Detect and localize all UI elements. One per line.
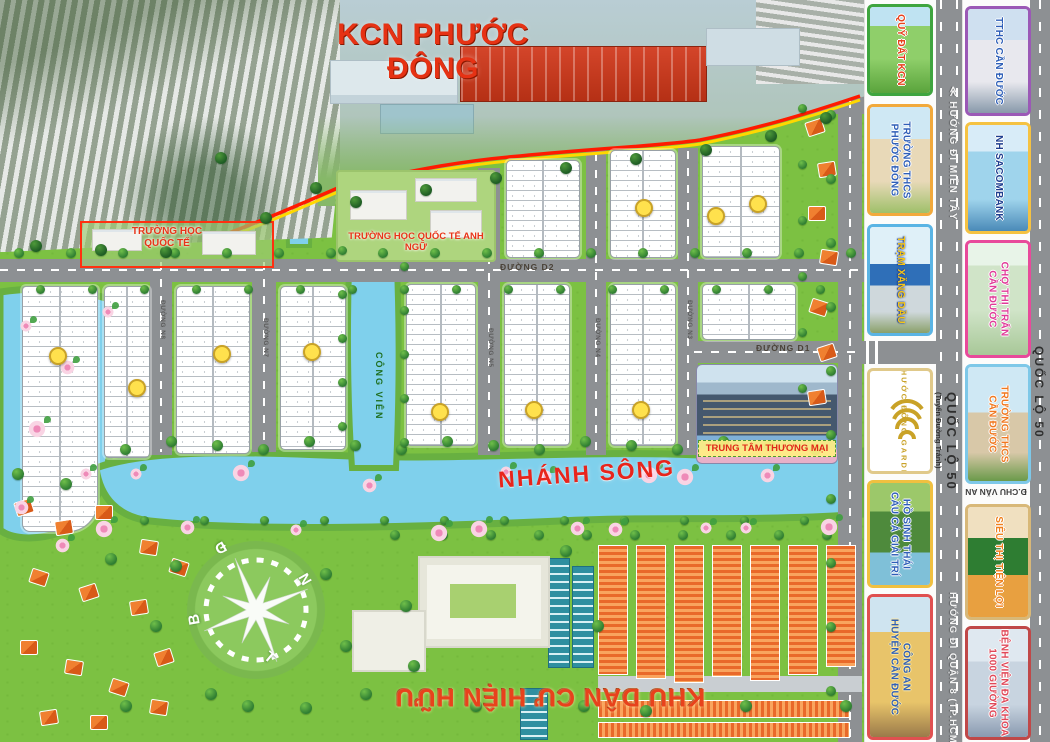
rowhouse-block xyxy=(674,545,704,683)
road-d1-label: ĐƯỜNG D1 xyxy=(756,343,810,353)
chu-van-an-street-label: Đ.CHU VĂN AN xyxy=(963,487,1029,497)
amenity-card-police: CÔNG AN HUYỆN CẦN ĐƯỚC xyxy=(867,594,933,740)
tree xyxy=(400,600,412,612)
amenity-card-school-phuoc-dong: TRƯỜNG THCS PHƯỚC ĐÔNG xyxy=(867,104,933,216)
tree xyxy=(798,160,807,169)
tree xyxy=(36,285,45,294)
tree xyxy=(534,530,544,540)
tree xyxy=(700,144,712,156)
amenity-card-industrial-land: QUỸ ĐẤT KCN xyxy=(867,4,933,96)
rowhouse-block xyxy=(598,545,628,675)
tree xyxy=(400,350,409,359)
lily-pad xyxy=(193,516,200,523)
tree xyxy=(826,494,836,504)
tree xyxy=(400,306,409,315)
villa-house xyxy=(808,206,826,221)
amenity-card-convenience-store: SIÊU THỊ TIỆN LỢI xyxy=(965,504,1031,620)
apartment-building xyxy=(572,566,594,668)
tree xyxy=(608,285,617,294)
tree xyxy=(60,478,72,490)
tree xyxy=(840,700,852,712)
lot-block xyxy=(610,284,676,446)
tree xyxy=(212,440,223,451)
tree xyxy=(400,438,409,447)
tree xyxy=(338,334,347,343)
tree xyxy=(800,516,809,525)
tree xyxy=(452,285,461,294)
lotus-flower xyxy=(102,306,114,318)
tree xyxy=(820,112,832,124)
tree xyxy=(408,660,420,672)
tree xyxy=(338,378,347,387)
lotus-flower xyxy=(28,420,46,438)
tree xyxy=(580,436,591,447)
existing-school-building xyxy=(418,556,550,648)
lotus-flower xyxy=(740,522,752,534)
tree xyxy=(798,104,807,113)
amenity-card-eco-lake: HỒ SINH THÁI CÂU CÁ GIẢI TRÍ xyxy=(867,480,933,588)
lot-block xyxy=(504,284,570,446)
tree xyxy=(556,285,565,294)
rowhouse-block xyxy=(788,545,818,675)
lily-pad xyxy=(621,518,628,525)
tree xyxy=(826,686,836,696)
road-n5-label: ĐƯỜNG N5 xyxy=(487,328,494,368)
lily-pad xyxy=(73,356,80,363)
tree xyxy=(88,285,97,294)
tree xyxy=(798,328,807,337)
ql50-bypass-name: QUỐC LỘ 50 xyxy=(944,392,959,491)
tree xyxy=(338,290,347,299)
block-badge xyxy=(49,347,67,365)
block-badge xyxy=(525,401,543,419)
tree xyxy=(638,248,648,258)
tree xyxy=(150,620,162,632)
tree xyxy=(350,440,361,451)
block-badge xyxy=(749,195,767,213)
tree xyxy=(798,384,807,393)
tree xyxy=(120,700,132,712)
lotus-flower xyxy=(130,468,142,480)
tree xyxy=(140,516,149,525)
park-label: CÔNG VIÊN xyxy=(374,352,384,421)
tree xyxy=(242,700,254,712)
tree xyxy=(400,394,409,403)
tree xyxy=(66,248,76,258)
tree xyxy=(488,440,499,451)
villa-house xyxy=(819,249,839,267)
international-school-label: TRƯỜNG HỌC QUỐC TẾ xyxy=(92,226,242,249)
tree xyxy=(12,468,24,480)
rowhouse-block xyxy=(598,722,850,738)
tree xyxy=(846,248,856,258)
amenity-label: BỆNH VIỆN ĐA KHOA 1000 GIƯỜNG xyxy=(987,626,1010,740)
villa-house xyxy=(807,389,827,407)
tree xyxy=(296,285,305,294)
tree xyxy=(326,248,336,258)
industrial-zone-title: KCN PHƯỚC ĐÔNG xyxy=(288,18,578,86)
villa-house xyxy=(39,709,59,727)
tree xyxy=(726,530,736,540)
existing-residential-label: KHU DÂN CƯ HIỆN HỮU xyxy=(375,682,725,711)
lotus-flower xyxy=(14,500,29,515)
block-badge xyxy=(213,345,231,363)
mall-label: TRUNG TÂM THƯƠNG MẠI xyxy=(698,440,836,457)
lotus-flower xyxy=(820,518,838,536)
tree xyxy=(360,688,372,700)
villa-house xyxy=(20,640,38,655)
tree xyxy=(310,182,322,194)
tree xyxy=(586,248,596,258)
lotus-flower xyxy=(470,520,488,538)
tree xyxy=(765,130,777,142)
lotus-flower xyxy=(290,524,302,536)
lot-block xyxy=(280,286,346,450)
villa-house xyxy=(64,659,84,677)
tree xyxy=(560,516,569,525)
compass-rose: Đ N B T xyxy=(187,541,325,679)
ql50-bypass-label: QUỐC LỘ 50 (Tuyến Đường Tránh) xyxy=(934,392,959,491)
tree xyxy=(350,196,362,208)
tree xyxy=(192,285,201,294)
tree xyxy=(166,436,177,447)
lot-block xyxy=(702,146,780,258)
amenity-card-admin-center: TTHC CẦN ĐƯỚC xyxy=(965,6,1031,116)
school-courtyard xyxy=(450,584,516,618)
amenity-label: NH SACOMBANK xyxy=(992,122,1004,234)
tree xyxy=(30,240,42,252)
amenity-label: TRẠM XĂNG DẦU xyxy=(894,224,906,336)
ql50-label: QUỐC LỘ 50 xyxy=(1032,346,1046,439)
tree xyxy=(274,248,284,258)
apartment-building xyxy=(548,558,570,668)
tree xyxy=(826,430,836,440)
tree xyxy=(678,530,688,540)
tree xyxy=(120,444,131,455)
tree xyxy=(244,285,253,294)
tree xyxy=(592,620,604,632)
project-logo-text: PHƯỚC ĐÔNG GARDEN xyxy=(900,368,909,474)
tree xyxy=(340,640,352,652)
tree xyxy=(826,302,836,312)
lotus-flower xyxy=(232,464,250,482)
masterplan-map: TRƯỜNG HỌC QUỐC TẾ ANH NGỮ TRƯỜNG HỌC QU… xyxy=(0,0,864,742)
block-badge xyxy=(707,207,725,225)
amenity-label: QUỸ ĐẤT KCN xyxy=(894,4,906,96)
lotus-flower xyxy=(95,520,113,538)
tree xyxy=(260,516,269,525)
tree xyxy=(774,530,784,540)
tree xyxy=(630,153,642,165)
lily-pad xyxy=(248,460,255,467)
tree xyxy=(560,162,572,174)
tree xyxy=(504,285,513,294)
tree xyxy=(320,516,329,525)
rowhouse-block xyxy=(750,545,780,681)
road-n7-label: ĐƯỜNG N7 xyxy=(262,318,269,358)
lot-block xyxy=(176,286,250,454)
tree xyxy=(798,216,807,225)
amenity-label: TRƯỜNG THCS PHƯỚC ĐÔNG xyxy=(889,104,912,216)
amenity-card-gas-station: TRẠM XĂNG DẦU xyxy=(867,224,933,336)
tree xyxy=(140,285,149,294)
tree xyxy=(742,248,752,258)
lily-pad xyxy=(583,517,590,524)
tree xyxy=(826,366,836,376)
tree xyxy=(170,560,182,572)
amenity-label: CHỢ THỊ TRẤN CẦN ĐƯỚC xyxy=(987,240,1010,358)
tree xyxy=(105,553,117,565)
tree xyxy=(534,248,544,258)
tree xyxy=(826,174,836,184)
tree xyxy=(794,248,804,258)
lotus-flower xyxy=(80,468,92,480)
lily-pad xyxy=(375,474,382,481)
connector-road xyxy=(862,341,938,364)
amenity-label: SIÊU THỊ TIỆN LỢI xyxy=(992,504,1004,620)
tree xyxy=(260,212,272,224)
block-badge xyxy=(632,401,650,419)
tree xyxy=(320,568,332,580)
amenity-label: TRƯỜNG THCS CẦN ĐƯỚC xyxy=(987,364,1010,484)
tree xyxy=(560,545,572,557)
tree xyxy=(258,444,269,455)
amenity-label: HỒ SINH THÁI CÂU CÁ GIẢI TRÍ xyxy=(889,480,912,588)
tree xyxy=(826,622,836,632)
tree xyxy=(200,516,209,525)
road-n3-label: ĐƯỜNG N3 xyxy=(686,300,693,340)
tree xyxy=(660,285,669,294)
lily-pad xyxy=(68,534,75,541)
tree xyxy=(400,262,409,271)
lotus-flower xyxy=(55,538,70,553)
tree xyxy=(816,285,825,294)
tree xyxy=(215,152,227,164)
tree xyxy=(348,285,357,294)
lot-block xyxy=(506,160,580,258)
tree xyxy=(826,238,836,248)
road-n8-label: ĐƯỜNG N8 xyxy=(159,300,166,340)
road-n4-label: ĐƯỜNG N4 xyxy=(594,318,601,358)
project-logo-card: PHƯỚC ĐÔNG GARDEN xyxy=(867,368,933,474)
rowhouse-block xyxy=(636,545,666,679)
tree xyxy=(826,558,836,568)
amenity-card-hospital: BỆNH VIỆN ĐA KHOA 1000 GIƯỜNG xyxy=(965,626,1031,740)
amenity-card-school-can-duoc: TRƯỜNG THCS CẦN ĐƯỚC xyxy=(965,364,1031,484)
block-badge xyxy=(431,403,449,421)
rowhouse-block xyxy=(712,545,742,677)
ql50-bypass-sub: (Tuyến Đường Tránh) xyxy=(934,392,943,491)
masterplan-poster: TRƯỜNG HỌC QUỐC TẾ ANH NGỮ TRƯỜNG HỌC QU… xyxy=(0,0,1050,742)
lotus-flower xyxy=(180,520,195,535)
lotus-flower xyxy=(570,521,585,536)
tree xyxy=(626,440,637,451)
lily-pad xyxy=(836,514,843,521)
tree xyxy=(338,422,347,431)
block-badge xyxy=(635,199,653,217)
tree xyxy=(420,184,432,196)
tree xyxy=(764,285,773,294)
villa-house xyxy=(149,699,169,717)
tree xyxy=(380,516,389,525)
lotus-flower xyxy=(760,468,775,483)
villa-house xyxy=(90,715,108,730)
tree xyxy=(490,172,502,184)
block-badge xyxy=(303,343,321,361)
amenity-card-market: CHỢ THỊ TRẤN CẦN ĐƯỚC xyxy=(965,240,1031,358)
tree xyxy=(690,248,700,258)
lotus-flower xyxy=(362,478,377,493)
lily-pad xyxy=(27,496,34,503)
lily-pad xyxy=(44,416,51,423)
tree xyxy=(14,248,24,258)
tree xyxy=(798,272,807,281)
lily-pad xyxy=(111,516,118,523)
villa-house xyxy=(129,599,149,617)
direction-mien-tay-label: ≪ HƯỚNG ĐI MIỀN TÂY xyxy=(947,86,958,221)
tree xyxy=(740,700,752,712)
tree xyxy=(630,530,640,540)
direction-quan8-label: HƯỚNG ĐI QUẬN 8 (TP.HCM) ≫ xyxy=(947,592,958,742)
tree xyxy=(442,436,453,447)
tree xyxy=(534,444,545,455)
tree xyxy=(300,702,312,714)
tree xyxy=(680,516,689,525)
tree xyxy=(205,688,217,700)
lily-pad xyxy=(773,464,780,471)
villa-house xyxy=(139,539,159,557)
tree xyxy=(712,285,721,294)
lily-pad xyxy=(692,464,699,471)
tree xyxy=(500,516,509,525)
lot-block xyxy=(406,284,476,446)
road-d2-label: ĐƯỜNG D2 xyxy=(500,262,554,272)
amenity-label: CÔNG AN HUYỆN CẦN ĐƯỚC xyxy=(889,594,912,740)
lily-pad xyxy=(486,516,493,523)
lotus-flower xyxy=(20,320,32,332)
lotus-flower xyxy=(608,522,623,537)
tree xyxy=(304,436,315,447)
tree xyxy=(222,248,232,258)
tree xyxy=(400,285,409,294)
lotus-flower xyxy=(700,522,712,534)
english-school-label: TRƯỜNG HỌC QUỐC TẾ ANH NGỮ xyxy=(336,231,496,253)
tree xyxy=(118,248,128,258)
lily-pad xyxy=(446,520,453,527)
tree xyxy=(390,530,400,540)
lotus-flower xyxy=(430,524,448,542)
amenity-card-bank: NH SACOMBANK xyxy=(965,122,1031,234)
block-badge xyxy=(128,379,146,397)
amenity-label: TTHC CẦN ĐƯỚC xyxy=(992,6,1004,116)
